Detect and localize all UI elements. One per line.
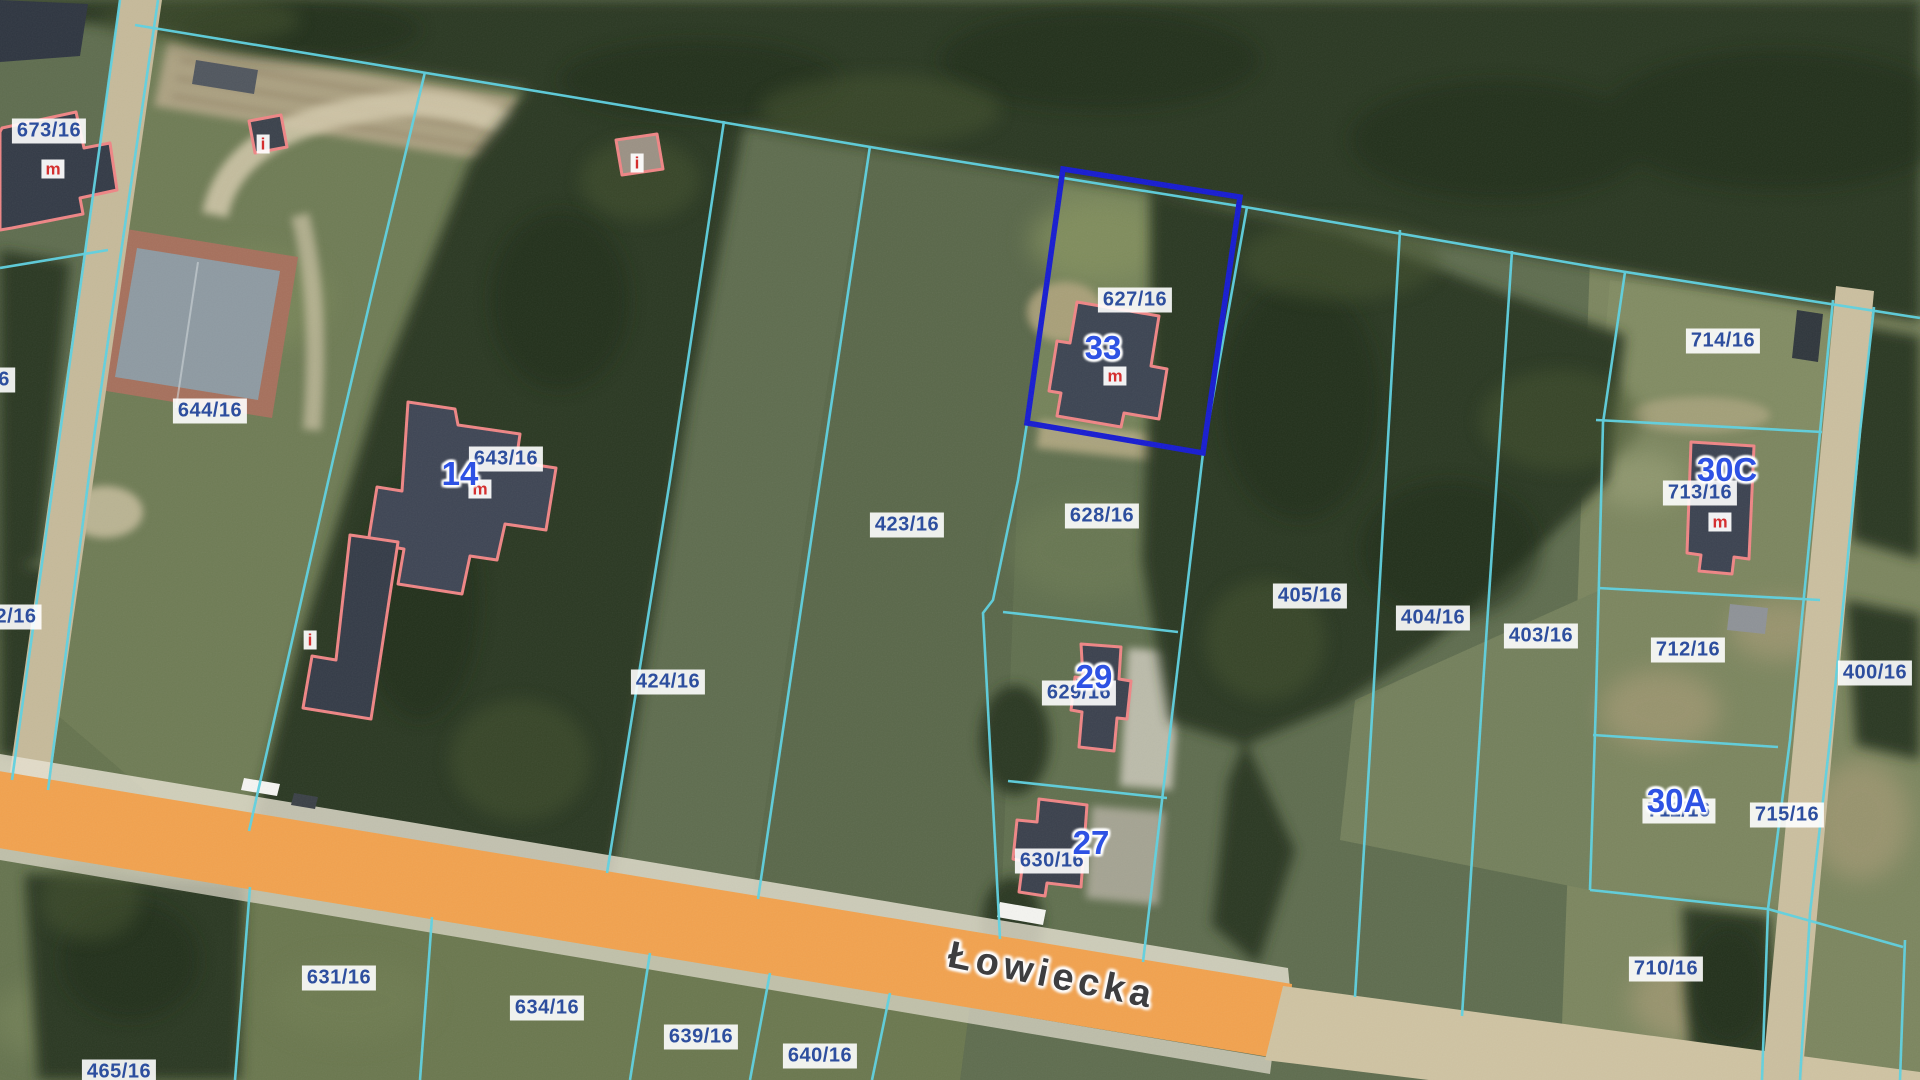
parcel-label-643-16[interactable]: 643/16	[469, 447, 543, 472]
parcel-label-715-16[interactable]: 715/16	[1750, 803, 1824, 828]
building-type-badge-m: m	[1103, 367, 1126, 386]
parcel-label-627-16[interactable]: 627/16	[1098, 288, 1172, 313]
parcel-label-639-16[interactable]: 639/16	[664, 1025, 738, 1050]
parcel-label-712-16[interactable]: 712/16	[1651, 638, 1725, 663]
building-number-30A: 30A	[1647, 782, 1708, 820]
building-type-badge-i: i	[257, 135, 270, 154]
parcel-label-710-16[interactable]: 710/16	[1629, 957, 1703, 982]
parcel-label-404-16[interactable]: 404/16	[1396, 606, 1470, 631]
building-number-33: 33	[1085, 329, 1122, 367]
parcel-label-405-16[interactable]: 405/16	[1273, 584, 1347, 609]
building-number-30C: 30C	[1697, 451, 1758, 489]
parcel-label-partial-6[interactable]: 6	[0, 368, 15, 393]
satellite-layer	[0, 0, 1920, 1080]
building-type-badge-i: i	[304, 631, 317, 650]
parcel-label-644-16[interactable]: 644/16	[173, 399, 247, 424]
parcel-label-465-16[interactable]: 465/16	[82, 1060, 156, 1080]
parcel-label-424-16[interactable]: 424/16	[631, 670, 705, 695]
parcel-label-628-16[interactable]: 628/16	[1065, 504, 1139, 529]
parcel-label-634-16[interactable]: 634/16	[510, 996, 584, 1021]
building-type-badge-i: i	[631, 154, 644, 173]
parcel-label-640-16[interactable]: 640/16	[783, 1044, 857, 1069]
map-canvas[interactable]: 673/16 6 2/16 644/16 643/16 424/16 423/1…	[0, 0, 1920, 1080]
parcel-label-673-16[interactable]: 673/16	[12, 119, 86, 144]
building-type-badge-m: m	[41, 160, 64, 179]
parcel-label-423-16[interactable]: 423/16	[870, 513, 944, 538]
photo-grain	[0, 0, 1920, 1080]
parcel-label-partial-2-16[interactable]: 2/16	[0, 605, 41, 630]
building-number-14: 14	[442, 455, 479, 493]
building-number-29: 29	[1076, 658, 1113, 696]
parcel-label-714-16[interactable]: 714/16	[1686, 329, 1760, 354]
building-number-27: 27	[1073, 824, 1110, 862]
parcel-label-631-16[interactable]: 631/16	[302, 966, 376, 991]
parcel-label-400-16[interactable]: 400/16	[1838, 661, 1912, 686]
building-type-badge-m: m	[1708, 513, 1731, 532]
parcel-label-403-16[interactable]: 403/16	[1504, 624, 1578, 649]
